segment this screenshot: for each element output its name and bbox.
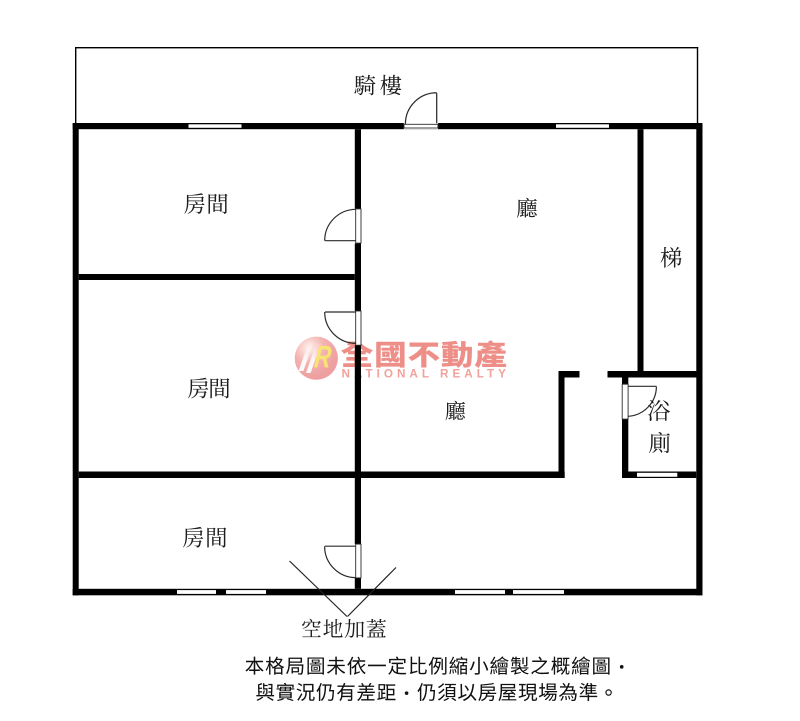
svg-text:NATIONAL REALTY: NATIONAL REALTY [342,368,510,381]
